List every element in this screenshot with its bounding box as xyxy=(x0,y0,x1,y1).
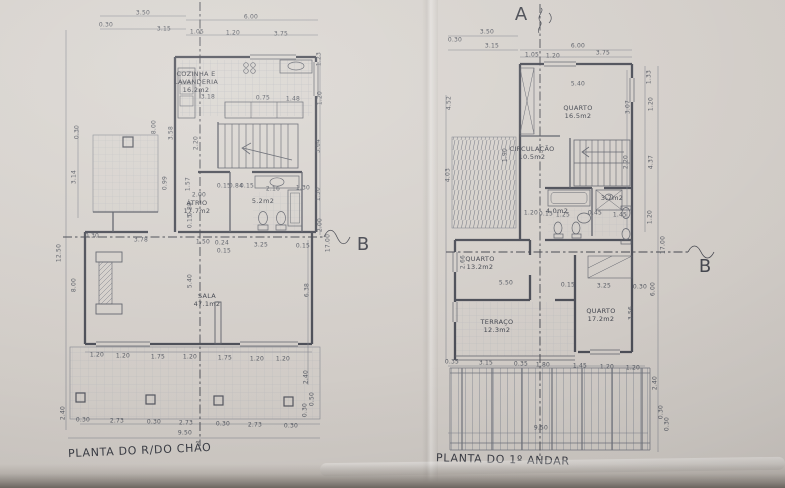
dimension-label: 3.58 xyxy=(167,126,175,140)
dimension-label: 0.30 xyxy=(147,418,161,426)
dimension-label: 1.20 xyxy=(647,97,655,111)
room-label: 5.2m2 xyxy=(252,197,274,205)
dimension-label: 1.48 xyxy=(286,95,300,103)
dimension-label: 3.50 xyxy=(136,9,150,17)
dimension-label: 5.40 xyxy=(571,80,585,88)
room-label: QUARTO 16.5m2 xyxy=(563,104,592,120)
dimension-label: 1.20 xyxy=(226,29,240,37)
dimension-label: 3.64 xyxy=(314,139,322,153)
dimension-label: 0.35 xyxy=(514,360,528,368)
dimension-label: 3.14 xyxy=(70,170,78,184)
dimension-label: 2.40 xyxy=(302,370,310,384)
dimension-label: 6.00 xyxy=(244,13,258,21)
dimension-label: 1.20 xyxy=(183,353,197,361)
wardrobes xyxy=(520,68,632,278)
photographed-blueprint: 3.500.303.156.001.051.203.751.231.203.64… xyxy=(0,0,785,488)
dimension-label: 3.25 xyxy=(254,241,268,249)
dimension-label: 9.50 xyxy=(178,429,192,437)
dimension-label: 0.30 xyxy=(633,283,647,291)
dimension-label: 3.75 xyxy=(274,30,288,38)
room-label: 3.7m2 xyxy=(601,194,623,202)
dimension-label: 1.33 xyxy=(645,70,653,84)
room-label: CIRCULAÇÃO 10.5m2 xyxy=(509,145,554,161)
dimension-label: 0.30 xyxy=(99,21,113,29)
dimension-label: 8.00 xyxy=(70,278,78,292)
dimension-label: 9.50 xyxy=(534,424,548,432)
room-label: ÁTRIO 17.7m2 xyxy=(184,199,211,215)
dimension-label: 0.15 xyxy=(561,281,575,289)
dimension-label: 4.37 xyxy=(647,155,655,169)
dimension-label: 1.20 xyxy=(90,351,104,359)
dimension-label: 0.30 xyxy=(76,416,90,424)
dimension-label: 1.80 xyxy=(536,361,550,369)
dimension-label: 2.00 xyxy=(192,191,206,199)
dimension-label: 3.15 xyxy=(479,359,493,367)
dimension-label: 6.00 xyxy=(571,42,585,50)
dimension-label: 3.78 xyxy=(134,236,148,244)
dimension-label: 1.30 xyxy=(296,184,310,192)
section-marker-letter: B xyxy=(357,234,369,257)
dimension-label: 0.35 xyxy=(445,358,459,366)
section-marker-letter: A xyxy=(515,4,527,27)
dimension-label: 1.20 xyxy=(250,355,264,363)
fireplace xyxy=(96,252,122,314)
dimension-label: 0.30 xyxy=(284,422,298,430)
dimension-label: 2.73 xyxy=(179,419,193,427)
dimension-label: 1.05 xyxy=(190,28,204,36)
dimension-label: 2.20 xyxy=(192,136,200,150)
dimension-label: 4.52 xyxy=(445,96,453,110)
dimension-label: 3.15 xyxy=(485,42,499,50)
dimension-label: 0.45 xyxy=(588,209,602,217)
room-label: 4.0m2 xyxy=(546,207,568,215)
dimension-label: 1.05 xyxy=(525,51,539,59)
dimension-label: 0.24 xyxy=(215,239,229,247)
dimension-label: 0.30 xyxy=(448,36,462,44)
dimension-label: 2.16 xyxy=(266,185,280,193)
dimension-label: 1.45 xyxy=(613,211,627,219)
room-label: TERRAÇO 12.3m2 xyxy=(481,318,514,334)
dimension-label: 2.40 xyxy=(651,376,659,390)
dimension-label: 2.20 xyxy=(622,155,630,169)
paper-crease xyxy=(422,0,438,488)
dimension-label: 0.15 xyxy=(296,242,310,250)
dimension-label: 17.00 xyxy=(324,234,332,252)
dimension-label: 0.75 xyxy=(256,94,270,102)
dimension-label: 2.00 xyxy=(316,218,324,232)
dimension-label: 1.75 xyxy=(218,354,232,362)
dimension-label: 12.50 xyxy=(55,244,63,262)
floor-plan-linework xyxy=(0,0,785,488)
dimension-label: 0.15 xyxy=(217,247,231,255)
dimension-label: 5.40 xyxy=(186,274,194,288)
dimension-label: 1.45 xyxy=(573,362,587,370)
dimension-label: 6.00 xyxy=(649,282,657,296)
dimension-label: 3.75 xyxy=(596,49,610,57)
dimension-label: 1.20 xyxy=(646,210,654,224)
dimension-label: 0.30 xyxy=(85,232,99,240)
dimension-label: 1.20 xyxy=(600,363,614,371)
dimension-label: 3.15 xyxy=(157,25,171,33)
dimension-label: 1.50 xyxy=(314,187,322,201)
dimension-label: 1.90 xyxy=(501,148,509,162)
staircase xyxy=(218,124,298,168)
dimension-label: 1.20 xyxy=(116,352,130,360)
dimension-label: 1.20 xyxy=(546,52,560,60)
dimension-label: 0.50 xyxy=(308,392,316,406)
section-marker-letter: B xyxy=(699,256,711,279)
balcony-deck xyxy=(450,368,650,450)
dimension-label: 0.99 xyxy=(161,176,169,190)
dimension-label: 2.40 xyxy=(59,406,67,420)
dimension-label: 3.07 xyxy=(624,100,632,114)
dimension-label: 3.25 xyxy=(597,282,611,290)
dimension-label: 2.73 xyxy=(110,417,124,425)
dimension-label: 0.30 xyxy=(73,125,81,139)
dimension-label: 3.50 xyxy=(480,28,494,36)
dimension-label: 1.23 xyxy=(315,52,323,66)
dimension-label: 1.20 xyxy=(276,355,290,363)
dimension-label: 8.00 xyxy=(150,120,158,134)
paper-bottom-edge-shadow xyxy=(0,464,785,488)
dimension-label: 4.03 xyxy=(444,168,452,182)
room-label: QUARTO 17.2m2 xyxy=(586,307,615,323)
room-label: COZINHA E LAVANDERIA 16.2m2 xyxy=(174,70,218,94)
dimension-label: 1.50 xyxy=(196,238,210,246)
dimension-label: 0.30 xyxy=(216,420,230,428)
dimension-label: 3.56 xyxy=(627,306,635,320)
room-label: QUARTO 13.2m2 xyxy=(465,255,494,271)
dimension-label: 1.20 xyxy=(524,209,538,217)
room-label: SALA 47.1m2 xyxy=(194,292,221,308)
dimension-label: 0.30 xyxy=(663,417,671,431)
dimension-label: 1.20 xyxy=(626,364,640,372)
dimension-label: 6.38 xyxy=(303,283,311,297)
dimension-label: 1.75 xyxy=(151,353,165,361)
first-floor-plan xyxy=(446,4,714,460)
dimension-label: 1.20 xyxy=(316,91,324,105)
dimension-label: 2.73 xyxy=(248,421,262,429)
dimension-label: 17.00 xyxy=(659,236,667,254)
dimension-label: 0.15 xyxy=(240,182,254,190)
dimension-label: 0.30 xyxy=(301,403,309,417)
dimension-label: 0.15 xyxy=(186,214,194,228)
dimension-label: 5.50 xyxy=(499,279,513,287)
dimension-label: 3.18 xyxy=(201,93,215,101)
dimension-label: 1.57 xyxy=(184,177,192,191)
